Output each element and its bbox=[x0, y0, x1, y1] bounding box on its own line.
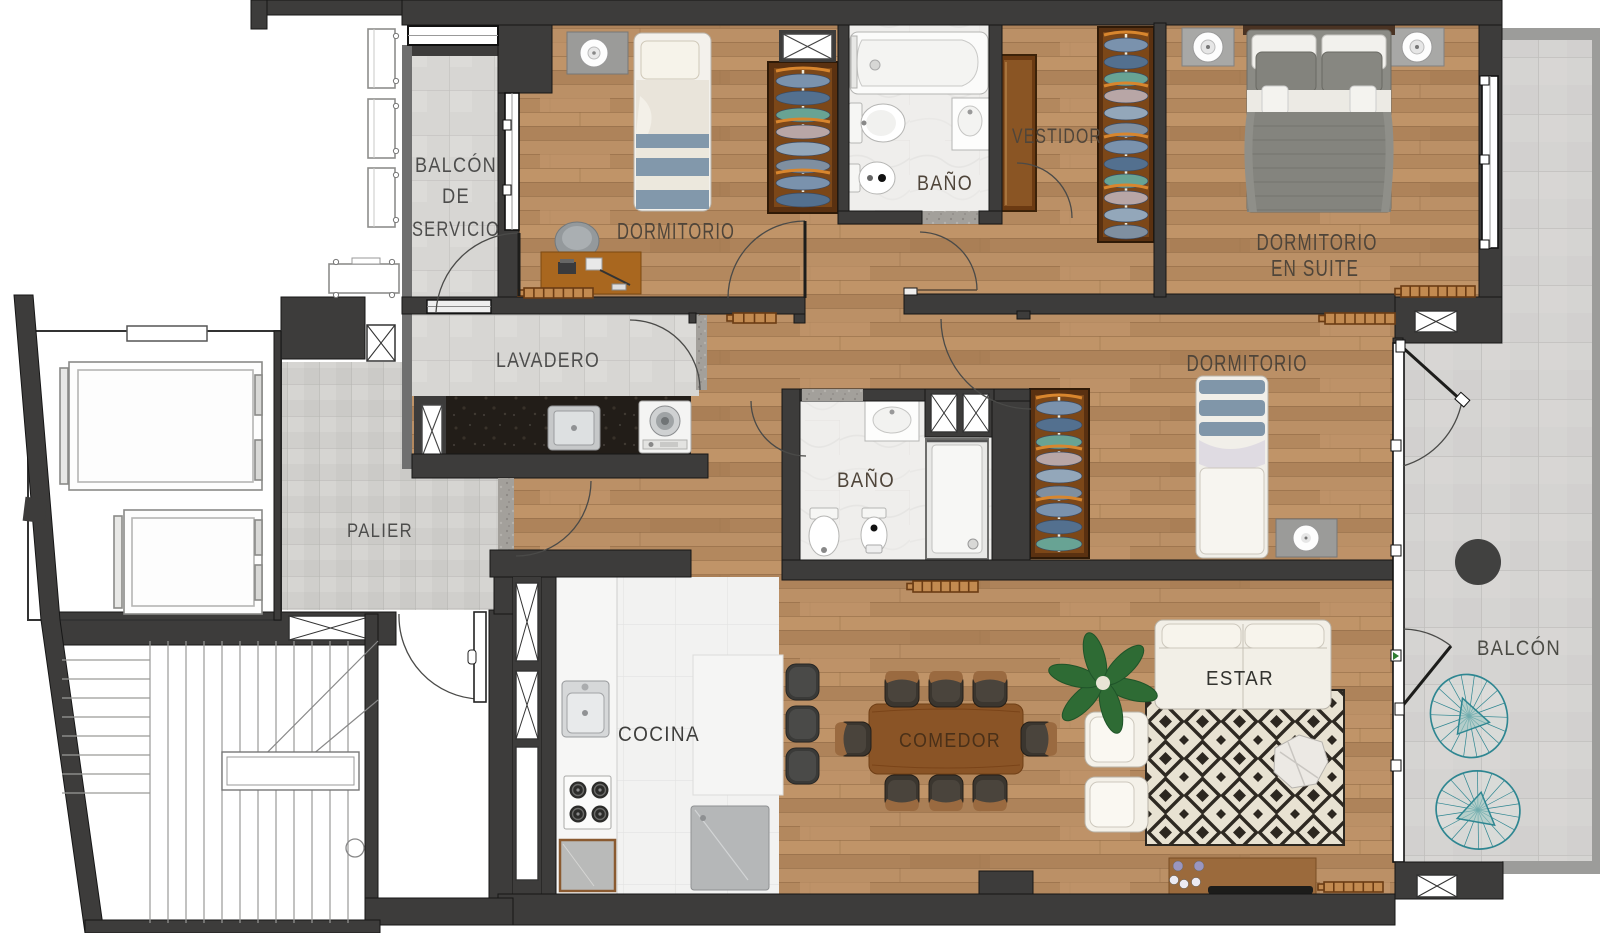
svg-text:DORMITORIO: DORMITORIO bbox=[617, 218, 735, 244]
svg-text:BAÑO: BAÑO bbox=[917, 171, 973, 195]
svg-text:PALIER: PALIER bbox=[347, 521, 413, 542]
svg-text:EN SUITE: EN SUITE bbox=[1271, 255, 1359, 281]
svg-text:COMEDOR: COMEDOR bbox=[899, 730, 1001, 752]
svg-text:BALCÓN: BALCÓN bbox=[1477, 637, 1561, 660]
svg-text:DORMITORIO: DORMITORIO bbox=[1257, 229, 1378, 255]
svg-text:DORMITORIO: DORMITORIO bbox=[1187, 350, 1308, 376]
svg-text:SERVICIO: SERVICIO bbox=[412, 218, 500, 241]
svg-text:DE: DE bbox=[442, 185, 470, 208]
svg-text:COCINA: COCINA bbox=[618, 723, 700, 746]
svg-text:LAVADERO: LAVADERO bbox=[496, 349, 600, 372]
svg-text:VESTIDOR: VESTIDOR bbox=[1012, 125, 1102, 148]
svg-text:BAÑO: BAÑO bbox=[837, 468, 895, 492]
svg-text:ESTAR: ESTAR bbox=[1206, 668, 1274, 690]
svg-text:BALCÓN: BALCÓN bbox=[415, 154, 497, 177]
